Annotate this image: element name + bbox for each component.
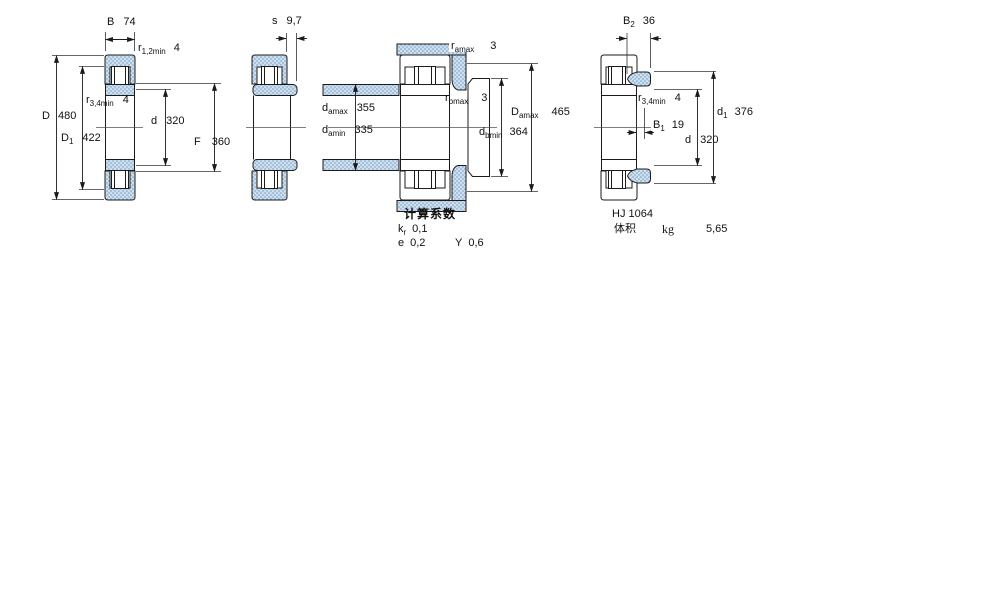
- calc-factor-e: e0,2: [398, 238, 425, 249]
- inner-ring-flange-top: [253, 85, 297, 96]
- inner-ring-bottom: [106, 160, 135, 171]
- drawing-angle-ring-section: [594, 33, 716, 200]
- inner-ring-top: [401, 85, 450, 96]
- dim-label-Damax: Damax465: [511, 107, 570, 118]
- inner-ring-top: [106, 85, 135, 96]
- housing-shoulder-bottom: [452, 166, 466, 201]
- calc-factors-heading: 计算系数: [404, 208, 456, 220]
- inner-ring-flange-bottom: [253, 160, 297, 171]
- drawing-side-view: [246, 33, 307, 200]
- dim-label-s: s9,7: [272, 16, 302, 27]
- calc-factor-Y: Y0,6: [455, 238, 484, 249]
- dim-label-D: D480: [42, 111, 76, 122]
- angle-ring-designation: HJ 1064: [612, 209, 653, 220]
- dim-label-d: d320: [151, 116, 184, 127]
- volume-label: 体积: [614, 224, 636, 235]
- dim-label-rbmax: rbmax3: [445, 93, 487, 104]
- dim-label-d1: d1376: [717, 107, 753, 118]
- inner-ring-bottom: [602, 160, 637, 171]
- dim-label-F: F360: [194, 137, 230, 148]
- hj-angle-ring-bottom: [628, 169, 651, 183]
- roller-bottom: [415, 170, 436, 189]
- technical-drawing-canvas: [0, 0, 1000, 600]
- roller-bottom: [262, 170, 278, 189]
- extension-lines: [287, 33, 297, 81]
- bearing-datasheet-drawings: B74 r1,2min4 r3,4min4 D480 D1422 d320 F3…: [0, 0, 1000, 600]
- calc-factor-kr: kr0,1: [398, 224, 427, 235]
- dim-label-r12min: r1,2min4: [138, 43, 180, 54]
- inner-ring-bottom: [401, 160, 450, 171]
- inner-ring-top: [602, 85, 637, 96]
- shaft-shoulder-top: [323, 85, 399, 96]
- dim-label-damax: damax355: [322, 103, 375, 114]
- extension-lines: [627, 33, 716, 184]
- dim-label-ramax: ramax3: [449, 41, 498, 52]
- housing-shoulder-top: [452, 55, 466, 90]
- dim-label-B2: B236: [623, 16, 655, 27]
- hj-angle-ring-top: [628, 72, 651, 86]
- dim-label-r34min-hj: r3,4min4: [638, 93, 681, 104]
- dim-label-B: B74: [107, 17, 136, 28]
- volume-unit: kg: [662, 223, 674, 235]
- roller-top: [262, 67, 278, 86]
- dim-label-r34min: r3,4min4: [86, 95, 129, 106]
- dim-label-dbmin: dbmin364: [479, 127, 528, 138]
- shaft-shoulder-bottom: [323, 160, 399, 171]
- dim-label-D1: D1422: [61, 133, 101, 144]
- dim-label-d-hj: d320: [685, 135, 718, 146]
- extension-lines: [52, 32, 221, 200]
- dim-label-damin: damin335: [322, 125, 373, 136]
- drawing-main-cross-section: [52, 32, 221, 200]
- volume-value: 5,65: [706, 224, 727, 235]
- roller-top: [415, 67, 436, 86]
- dim-label-B1: B119: [651, 120, 686, 131]
